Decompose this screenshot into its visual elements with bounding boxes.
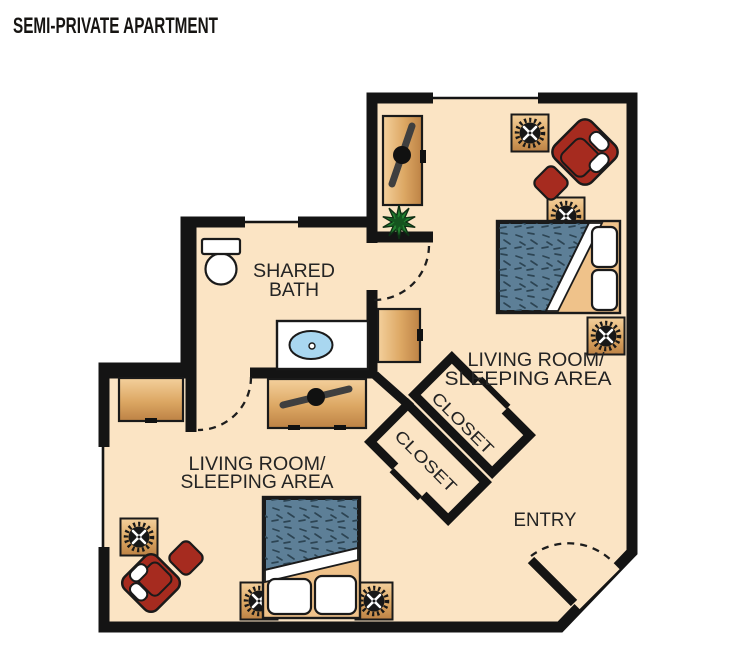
pillow-icon xyxy=(592,270,617,310)
dresser-icon xyxy=(119,378,183,423)
lower-room-label-line2: SLEEPING AREA xyxy=(181,472,334,493)
wardrobe-icon xyxy=(378,309,423,362)
upper-room-label-line1: LIVING ROOM/ xyxy=(468,350,606,371)
bed-icon xyxy=(497,221,620,313)
toilet-icon xyxy=(202,239,240,285)
side-table-lamp-icon xyxy=(121,519,158,556)
upper-room-label-line2: SLEEPING AREA xyxy=(445,369,612,390)
window-icon xyxy=(98,447,110,547)
dresser-handle xyxy=(417,329,423,341)
vanity-sink-icon xyxy=(277,321,368,369)
page-title: SEMI-PRIVATE APARTMENT xyxy=(13,13,218,38)
pillow-icon xyxy=(268,579,311,614)
entry-label: ENTRY xyxy=(514,510,577,531)
dresser-handle xyxy=(420,150,426,163)
bath-label-line2: BATH xyxy=(269,280,319,301)
pillow-icon xyxy=(592,227,617,267)
tv-dresser-icon xyxy=(268,379,366,430)
side-table-lamp-icon xyxy=(588,318,625,355)
side-table-lamp-icon xyxy=(512,115,549,152)
tv-dresser-icon xyxy=(383,116,426,205)
bath-label-line1: SHARED xyxy=(253,261,335,282)
bed-icon xyxy=(263,497,360,618)
pillow-icon xyxy=(315,576,356,614)
window-icon xyxy=(245,216,298,229)
window-icon xyxy=(433,91,538,105)
dresser-handle xyxy=(145,418,157,423)
floor-plan: SEMI-PRIVATE APARTMENT xyxy=(0,0,741,652)
